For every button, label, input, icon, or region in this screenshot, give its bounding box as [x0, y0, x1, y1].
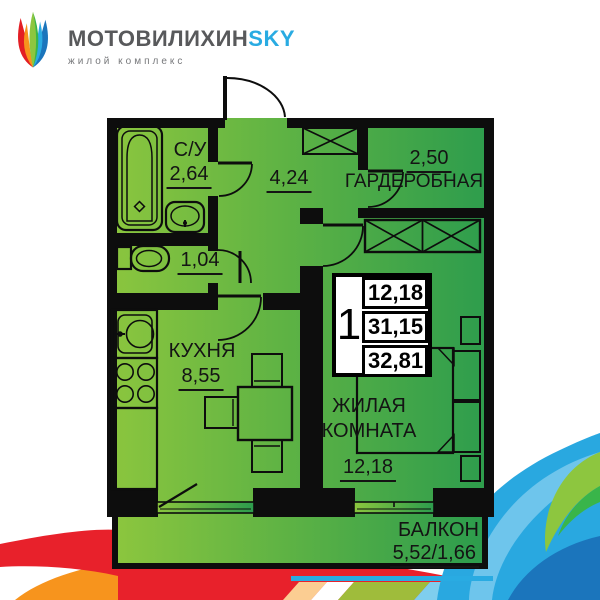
brand-main: МОТОВИЛИХИН: [68, 26, 248, 51]
apartment-info-box: 1 12,18 31,15 32,81: [332, 273, 432, 377]
brand-subtitle: жилой комплекс: [68, 56, 295, 67]
wardrobe-label: ГАРДЕРОБНАЯ: [345, 172, 483, 192]
total-area-value: 32,81: [362, 345, 428, 377]
toilet-area: 1,04: [178, 249, 223, 275]
kitchen-label: КУХНЯ: [169, 341, 236, 362]
balcony-label-block: БАЛКОН 5,52/1,66: [390, 520, 479, 568]
flame-logo-icon: [10, 8, 56, 74]
brand-title: МОТОВИЛИХИНSKY: [68, 28, 295, 50]
living-room-label: ЖИЛАЯ КОМНАТА: [299, 394, 439, 444]
rooms-count: 1: [336, 277, 362, 373]
living-room-area: 12,18: [340, 456, 396, 482]
balcony-area: 5,52/1,66: [390, 543, 479, 568]
floorplan-graphics: [0, 0, 600, 600]
entrance-door-arc: [227, 78, 285, 117]
bathroom-label: С/У: [174, 140, 207, 161]
wardrobe-area: 2,50: [407, 147, 452, 173]
living-area-value: 12,18: [362, 277, 428, 309]
brand-accent: SKY: [248, 26, 295, 51]
hallway-area: 4,24: [267, 167, 312, 193]
area-value: 31,15: [362, 311, 428, 343]
living-window: [354, 502, 434, 513]
logo: МОТОВИЛИХИНSKY жилой комплекс: [10, 8, 295, 74]
balcony-label: БАЛКОН: [390, 520, 479, 541]
page: МОТОВИЛИХИНSKY жилой комплекс С/У 2,64 4…: [0, 0, 600, 600]
bathroom-area: 2,64: [167, 163, 212, 189]
kitchen-area: 8,55: [179, 365, 224, 391]
entrance-door-leaf: [223, 76, 227, 120]
